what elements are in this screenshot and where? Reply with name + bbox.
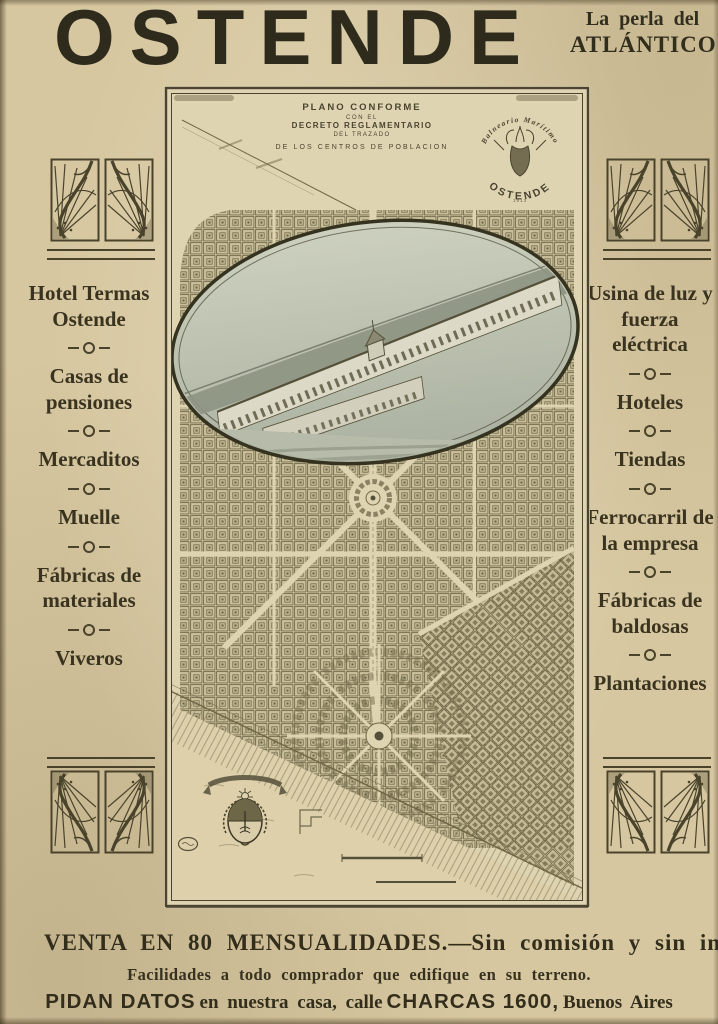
- feature-item: Tiendas: [584, 447, 716, 473]
- feature-item: Muelle: [14, 505, 164, 531]
- plaza-circle: [349, 474, 397, 522]
- feature-item: Casas de pensiones: [14, 364, 164, 415]
- plan-title-line3: DECRETO REGLAMENTARIO: [292, 121, 433, 130]
- plan-title-line5: DE LOS CENTROS DE POBLACION: [275, 144, 448, 151]
- feature-item: Ferrocarril de la empresa: [584, 505, 716, 556]
- advertisement-page: OSTENDE La perla del ATLÁNTICO Hotel Ter…: [0, 0, 718, 1024]
- feature-item: Plantaciones: [584, 671, 716, 697]
- separator-ornament: [14, 541, 164, 553]
- separator-ornament: [584, 649, 716, 661]
- city-plan-map: PLANO CONFORME CON EL DECRETO REGLAMENTA…: [164, 86, 590, 908]
- sin-comision-text: Sin comisión y sin intereses: [471, 930, 718, 956]
- address-text-2: Buenos Aires: [563, 992, 673, 1013]
- separator-ornament: [14, 342, 164, 354]
- slogan: La perla del ATLÁNTICO: [570, 7, 715, 59]
- address-text-1: en nuestra casa, calle: [200, 992, 383, 1013]
- charcas-text: CHARCAS 1600,: [387, 990, 560, 1013]
- artnouveau-ornament-icon: [50, 158, 154, 242]
- separator-ornament: [584, 425, 716, 437]
- footer-line1: VENTA EN 80 MENSUALIDADES. — Sin comisió…: [44, 930, 696, 956]
- double-rule: [47, 249, 155, 260]
- separator-ornament: [14, 483, 164, 495]
- feature-item: Viveros: [14, 646, 164, 672]
- slogan-line1: La perla del: [570, 7, 715, 31]
- double-rule: [603, 757, 711, 768]
- separator-ornament: [14, 425, 164, 437]
- separator-ornament: [584, 368, 716, 380]
- feature-item: Fábricas de materiales: [14, 563, 164, 614]
- artnouveau-ornament-icon: [606, 770, 710, 854]
- pidan-datos-text: PIDAN DATOS: [45, 990, 195, 1013]
- crest-year-label: 1913: [513, 198, 527, 203]
- right-feature-list: Usina de luz y fuerza eléctrica Hoteles …: [584, 281, 716, 697]
- artnouveau-ornament-icon: [50, 770, 154, 854]
- feature-item: Hoteles: [584, 390, 716, 416]
- plan-title-line1: PLANO CONFORME: [302, 102, 421, 113]
- venta-text: VENTA EN 80 MENSUALIDADES.: [44, 930, 448, 956]
- feature-item: Hotel Termas Ostende: [14, 281, 164, 332]
- separator-ornament: [584, 483, 716, 495]
- separator-ornament: [14, 624, 164, 636]
- em-dash: —: [448, 930, 471, 956]
- artnouveau-ornament-icon: [606, 158, 710, 242]
- plan-title-line4: DEL TRAZADO: [333, 132, 390, 138]
- separator-ornament: [584, 566, 716, 578]
- slogan-line2: ATLÁNTICO: [570, 31, 715, 59]
- feature-item: Mercaditos: [14, 447, 164, 473]
- footer-line3: PIDAN DATOS en nuestra casa, calle CHARC…: [0, 990, 718, 1014]
- double-rule: [47, 757, 155, 768]
- feature-item: Usina de luz y fuerza eléctrica: [584, 281, 716, 358]
- double-rule: [603, 249, 711, 260]
- left-feature-list: Hotel Termas Ostende Casas de pensiones …: [14, 281, 164, 671]
- footer-line2: Facilidades a todo comprador que edifiqu…: [0, 965, 718, 985]
- page-title: OSTENDE: [54, 0, 536, 76]
- feature-item: Fábricas de baldosas: [584, 588, 716, 639]
